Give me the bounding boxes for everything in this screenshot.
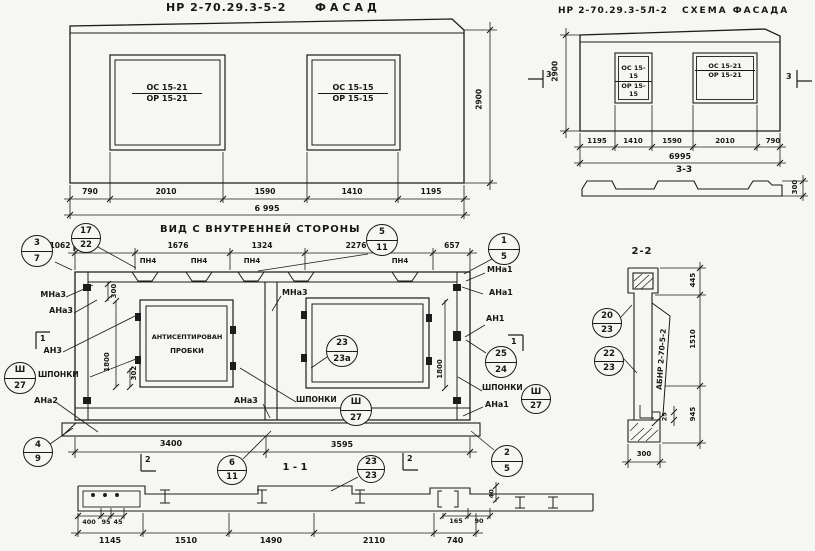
callout-top: 25 xyxy=(486,347,516,363)
callout-5-11: 511 xyxy=(366,224,398,256)
inner-vdim-302: 302 xyxy=(130,359,138,387)
dim-445: 445 xyxy=(689,266,697,294)
dim-945: 945 xyxy=(689,400,697,428)
cut-marker-2-bottom-left: 2 xyxy=(145,455,151,464)
callout-top: Ш xyxy=(522,385,550,400)
window-mark-bottom: ОР 15-15 xyxy=(615,82,652,99)
section-marker-3-left: 3 xyxy=(546,70,552,79)
dim-1510-vert: 1510 xyxy=(689,325,697,353)
facade-left-dim-790: 790 xyxy=(70,188,110,197)
dim-300-bottom: 300 xyxy=(630,450,658,458)
facade-left-dim-2010: 2010 xyxy=(146,188,186,197)
callout-bottom: 5 xyxy=(492,462,522,477)
drawing-sheet: НР 2-70.29.3-5-2 ФАСАД ОС 15-21 ОР 15-21… xyxy=(0,0,815,551)
pn4-label-1: ПН4 xyxy=(133,257,163,265)
callout-1-5: 15 xyxy=(488,233,520,265)
section-1-1-title: 1 - 1 xyxy=(270,462,320,474)
callout-bottom: 11 xyxy=(367,241,397,256)
facade-left-dim-1195: 1195 xyxy=(411,188,451,197)
callout-17-22: 1722 xyxy=(71,223,101,253)
callout-bottom: 5 xyxy=(489,250,519,265)
cut-marker-1-right: 1 xyxy=(511,337,517,346)
callout-top: 4 xyxy=(24,438,52,453)
callout-23-23a: 2323а xyxy=(326,335,358,367)
facade-right-title-name: СХЕМА ФАСАДА xyxy=(682,6,789,16)
pn4-label-4: ПН4 xyxy=(385,257,415,265)
dim-1145: 1145 xyxy=(85,536,135,545)
facade-right-dim-1410: 1410 xyxy=(613,137,653,145)
facade-right-window2-mark: ОС 15-21 ОР 15-21 xyxy=(695,62,755,80)
window-mark-top: ОС 15-15 xyxy=(615,64,652,82)
window-mark-bottom: ОР 15-21 xyxy=(695,71,755,79)
window-note-line1: АНТИСЕПТИРОВАН xyxy=(146,334,228,341)
label-mna1: МНа1 xyxy=(487,265,513,274)
profile-thickness-dim: 300 xyxy=(791,173,799,201)
section-2-2-title: 2-2 xyxy=(622,246,662,258)
facade-right-dim-2010: 2010 xyxy=(705,137,745,145)
dim-165: 165 xyxy=(441,518,471,525)
facade-left-dim-1590: 1590 xyxy=(245,188,285,197)
callout-bottom: 11 xyxy=(218,471,246,485)
callout-bottom: 27 xyxy=(5,379,35,394)
callout-top: 3 xyxy=(22,236,52,252)
label-shponki-left: ШПОНКИ xyxy=(38,371,79,380)
cut-marker-1-left: 1 xyxy=(40,334,46,343)
callout-top: 23 xyxy=(327,336,357,352)
facade-left-dim-1410: 1410 xyxy=(332,188,372,197)
facade-right-dim-total: 6995 xyxy=(650,152,710,161)
dim-1490: 1490 xyxy=(246,536,296,545)
facade-left-window2-mark: ОС 15-15 ОР 15-15 xyxy=(318,83,388,105)
facade-left-outline xyxy=(70,19,464,183)
callout-20-23: 2023 xyxy=(592,308,622,338)
dim-740: 740 xyxy=(430,536,480,545)
label-ana1-top: АНа1 xyxy=(489,288,513,297)
callout-top: 17 xyxy=(72,224,100,239)
facade-right-window1-mark: ОС 15-15 ОР 15-15 xyxy=(615,64,652,99)
window-mark-top: ОС 15-15 xyxy=(318,83,388,94)
facade-right-title-code: НР 2-70.29.3-5Л-2 xyxy=(558,6,668,16)
callout-top: 22 xyxy=(595,347,623,362)
callout-top: Ш xyxy=(341,395,371,411)
facade-right-dim-1590: 1590 xyxy=(652,137,692,145)
inner-dim-657: 657 xyxy=(432,242,472,251)
label-ana3-center: АНа3 xyxy=(234,396,258,405)
inner-vdim-1800-right: 1800 xyxy=(436,355,444,383)
section-marker-3-right: 3 xyxy=(786,72,792,81)
facade-right-dim-1195: 1195 xyxy=(577,137,617,145)
facade-left-title-code: НР 2-70.29.3-5-2 xyxy=(166,2,286,15)
callout-top: Ш xyxy=(5,363,35,379)
dim-2110: 2110 xyxy=(349,536,399,545)
cut-marker-2-bottom-right: 2 xyxy=(407,454,413,463)
callout-bottom: 27 xyxy=(341,411,371,426)
pn4-label-2: ПН4 xyxy=(184,257,214,265)
facade-right-height-dim: 2900 xyxy=(552,57,561,85)
dim-40: 40 xyxy=(488,480,495,508)
label-mna3-left: МНа3 xyxy=(26,290,66,299)
callout-sh-27-right: Ш27 xyxy=(521,384,551,414)
label-an3: АН3 xyxy=(30,346,62,355)
inner-view-title: ВИД С ВНУТРЕННЕЙ СТОРОНЫ xyxy=(160,224,361,236)
window-mark-top: ОС 15-21 xyxy=(695,62,755,71)
callout-bottom: 22 xyxy=(72,239,100,253)
window-mark-bottom: ОР 15-21 xyxy=(132,94,202,104)
callout-top: 23 xyxy=(358,456,384,470)
dim-90: 90 xyxy=(469,518,489,525)
label-an1: АН1 xyxy=(486,314,504,323)
label-mna3-center: МНа3 xyxy=(282,288,308,297)
facade-left-window1-mark: ОС 15-21 ОР 15-21 xyxy=(132,83,202,105)
inner-dim-1324: 1324 xyxy=(242,242,282,251)
window-note-line2: ПРОБКИ xyxy=(146,347,228,355)
callout-top: 20 xyxy=(593,309,621,324)
callout-top: 1 xyxy=(489,234,519,250)
callout-bottom: 27 xyxy=(522,400,550,414)
callout-bottom: 24 xyxy=(486,363,516,378)
callout-top: 6 xyxy=(218,456,246,471)
window-mark-bottom: ОР 15-15 xyxy=(318,94,388,104)
callout-sh-27-left: Ш27 xyxy=(4,362,36,394)
inner-dim-3400: 3400 xyxy=(146,439,196,448)
facade-right-dim-790: 790 xyxy=(753,137,793,145)
callout-bottom: 23 xyxy=(593,324,621,338)
callout-sh-27-center: Ш27 xyxy=(340,394,372,426)
callout-25-24: 2524 xyxy=(485,346,517,378)
label-shponki-center: ШПОНКИ xyxy=(296,396,337,405)
dim-1510: 1510 xyxy=(161,536,211,545)
inner-dim-3595: 3595 xyxy=(317,440,367,449)
inner-vdim-300: 300 xyxy=(110,277,118,305)
dim-45: 45 xyxy=(110,519,126,526)
callout-bottom: 23а xyxy=(327,352,357,367)
window-mark-top: ОС 15-21 xyxy=(132,83,202,94)
callout-3-7: 37 xyxy=(21,235,53,267)
label-ana2: АНа2 xyxy=(26,396,58,405)
section-3-3-title: 3-3 xyxy=(664,165,704,175)
label-ana1-bottom: АНа1 xyxy=(485,400,509,409)
facade-left-dim-total: 6 995 xyxy=(237,204,297,213)
facade-left-height-dim: 2900 xyxy=(476,85,485,113)
callout-top: 2 xyxy=(492,446,522,462)
callout-top: 5 xyxy=(367,225,397,241)
inner-view-outline xyxy=(62,272,480,436)
callout-bottom: 23 xyxy=(358,470,384,483)
callout-4-9: 49 xyxy=(23,437,53,467)
callout-6-11: 611 xyxy=(217,455,247,485)
label-shponki-right: ШПОНКИ xyxy=(482,384,523,393)
callout-bottom: 9 xyxy=(24,453,52,467)
callout-2-5: 25 xyxy=(491,445,523,477)
callout-bottom: 23 xyxy=(595,362,623,376)
callout-23-23: 2323 xyxy=(357,455,385,483)
inner-vdim-1800-left: 1800 xyxy=(103,348,111,376)
inner-dim-1676: 1676 xyxy=(158,242,198,251)
facade-left-title-name: ФАСАД xyxy=(315,2,381,15)
callout-bottom: 7 xyxy=(22,252,52,267)
pn4-label-3: ПН4 xyxy=(237,257,267,265)
label-ana3-left: АНа3 xyxy=(33,306,73,315)
callout-22-23: 2223 xyxy=(594,346,624,376)
